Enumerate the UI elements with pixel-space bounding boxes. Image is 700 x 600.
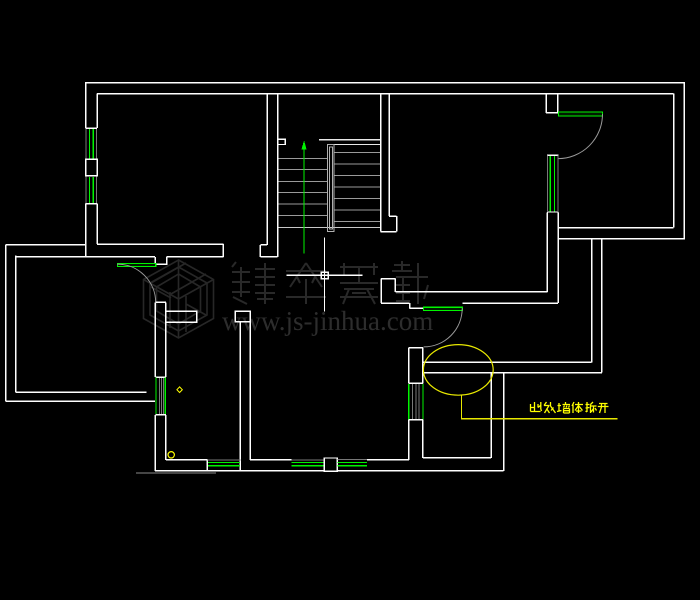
svg-text:www.js-jinhua.com: www.js-jinhua.com xyxy=(222,306,433,336)
